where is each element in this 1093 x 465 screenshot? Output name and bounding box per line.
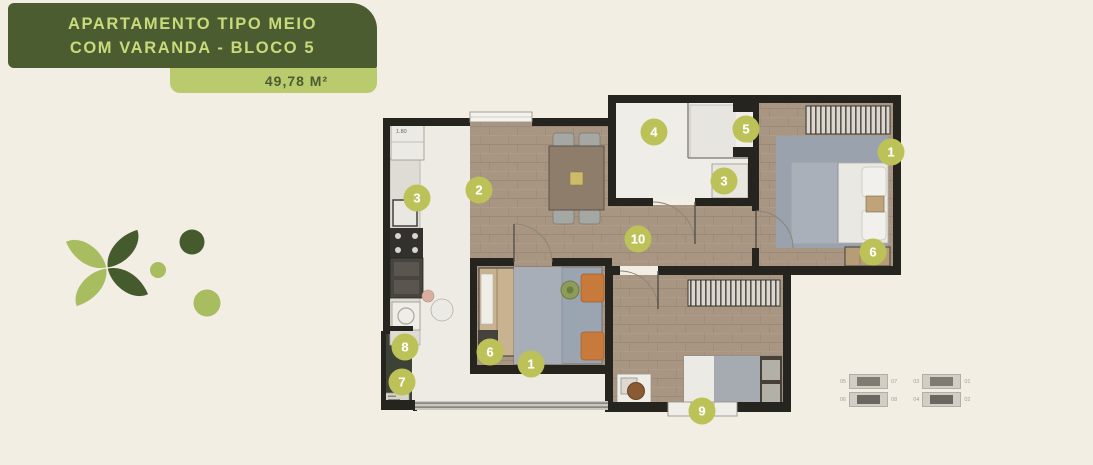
room-marker-7: 7 — [389, 369, 416, 396]
chair — [422, 290, 434, 302]
keyplan-unit-block — [849, 374, 888, 389]
keyplan-right-cluster: 03 01 04 02 — [913, 374, 970, 407]
room-marker-3-kitchen: 3 — [404, 185, 431, 212]
keyplan-unit-label: 02 — [964, 397, 970, 403]
dining-set — [549, 133, 604, 224]
stove — [390, 228, 423, 258]
keyplan-unit-label: 08 — [891, 397, 897, 403]
keyplan-unit-label: 01 — [964, 379, 970, 385]
room-marker-1-bedroom: 1 — [518, 351, 545, 378]
room-marker-2: 2 — [466, 177, 493, 204]
room-marker-6-bedroom: 6 — [477, 339, 504, 366]
page: APARTAMENTO TIPO MEIO COM VARANDA - BLOC… — [0, 0, 1093, 465]
bedroom2-wardrobe — [688, 280, 780, 306]
keyplan-unit-block — [849, 392, 888, 407]
keyplan: 05 07 06 08 03 01 04 02 — [840, 374, 971, 407]
washer — [392, 302, 420, 330]
desk-chair — [628, 383, 645, 400]
room-marker-9: 9 — [689, 398, 716, 425]
room-marker-6-suite: 6 — [860, 239, 887, 266]
room-marker-8: 8 — [392, 334, 419, 361]
keyplan-left-cluster: 05 07 06 08 — [840, 374, 897, 407]
keyplan-unit-label: 03 — [913, 379, 919, 385]
keyplan-unit-label: 07 — [891, 379, 897, 385]
dimension-label: 1.80 — [396, 129, 407, 135]
small-table — [431, 299, 453, 321]
window — [415, 401, 608, 410]
room-marker-10: 10 — [625, 226, 652, 253]
keyplan-unit-label: 05 — [840, 379, 846, 385]
room-marker-3-bath: 3 — [711, 168, 738, 195]
keyplan-unit-block — [922, 374, 961, 389]
room-marker-5: 5 — [733, 116, 760, 143]
room-marker-4: 4 — [641, 119, 668, 146]
keyplan-unit-label: 04 — [913, 397, 919, 403]
keyplan-unit-label: 06 — [840, 397, 846, 403]
suite-wardrobe — [806, 106, 890, 134]
room-marker-1-suite: 1 — [878, 139, 905, 166]
keyplan-unit-block — [922, 392, 961, 407]
